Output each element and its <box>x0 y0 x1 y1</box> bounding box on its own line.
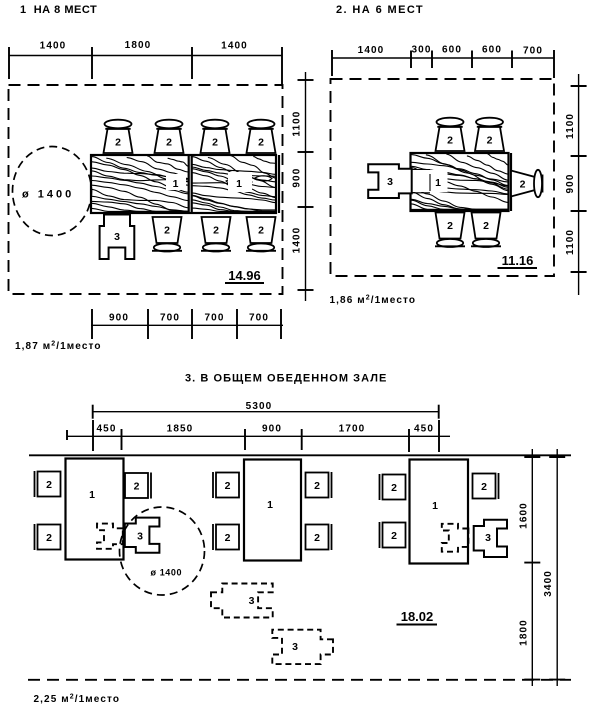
svg-text:450: 450 <box>97 424 117 435</box>
svg-text:2: 2 <box>164 225 170 237</box>
svg-text:1600: 1600 <box>519 502 530 529</box>
svg-text:700: 700 <box>160 313 180 324</box>
svg-text:900: 900 <box>292 168 303 188</box>
svg-text:18.02: 18.02 <box>401 609 434 624</box>
svg-text:300: 300 <box>412 45 432 56</box>
svg-text:1100: 1100 <box>565 113 576 139</box>
svg-text:2: 2 <box>212 137 218 149</box>
svg-text:2: 2 <box>520 178 526 190</box>
svg-text:ø 1400: ø 1400 <box>151 568 183 578</box>
svg-text:1100: 1100 <box>565 229 576 255</box>
svg-text:ø 1400: ø 1400 <box>22 189 74 201</box>
svg-text:2: 2 <box>314 480 320 492</box>
svg-text:900: 900 <box>109 313 129 324</box>
svg-text:700: 700 <box>249 313 269 324</box>
svg-text:2: 2 <box>213 225 219 237</box>
svg-text:2. НА 6 МЕСТ: 2. НА 6 МЕСТ <box>336 4 424 16</box>
svg-text:3. В ОБЩЕМ ОБЕДЕННОМ ЗАЛЕ: 3. В ОБЩЕМ ОБЕДЕННОМ ЗАЛЕ <box>185 373 387 385</box>
svg-text:1800: 1800 <box>519 619 530 646</box>
svg-text:1850: 1850 <box>167 424 194 435</box>
svg-text:2: 2 <box>166 137 172 149</box>
svg-text:1400: 1400 <box>221 41 248 52</box>
svg-text:1: 1 <box>173 178 179 190</box>
svg-text:2: 2 <box>483 220 489 232</box>
svg-text:2: 2 <box>481 481 487 493</box>
svg-text:700: 700 <box>205 313 225 324</box>
svg-text:2: 2 <box>447 220 453 232</box>
svg-text:2: 2 <box>258 225 264 237</box>
svg-text:1: 1 <box>89 489 95 501</box>
svg-text:2: 2 <box>46 532 52 544</box>
svg-text:450: 450 <box>414 424 434 435</box>
svg-text:3: 3 <box>137 531 143 543</box>
svg-text:2: 2 <box>225 480 231 492</box>
svg-text:1400: 1400 <box>358 45 385 56</box>
svg-text:2,25 м2/1место: 2,25 м2/1место <box>34 694 121 706</box>
svg-text:3: 3 <box>114 231 120 243</box>
svg-text:11.16: 11.16 <box>502 253 534 268</box>
svg-text:1700: 1700 <box>339 424 366 435</box>
svg-text:1: 1 <box>435 177 441 189</box>
svg-text:900: 900 <box>565 174 576 194</box>
svg-text:3400: 3400 <box>543 570 554 597</box>
svg-text:2: 2 <box>225 532 231 544</box>
svg-text:900: 900 <box>262 424 282 435</box>
svg-text:1: 1 <box>236 178 242 190</box>
svg-text:600: 600 <box>442 45 462 56</box>
svg-text:3: 3 <box>292 641 298 653</box>
svg-text:14.96: 14.96 <box>228 268 261 283</box>
svg-text:2: 2 <box>487 135 493 147</box>
svg-text:2: 2 <box>134 481 140 493</box>
svg-text:2: 2 <box>391 482 397 494</box>
svg-text:1: 1 <box>267 499 273 511</box>
svg-text:700: 700 <box>523 46 543 57</box>
svg-text:1100: 1100 <box>292 111 303 137</box>
svg-text:2: 2 <box>391 530 397 542</box>
svg-text:5300: 5300 <box>246 401 273 412</box>
svg-text:1800: 1800 <box>125 40 152 51</box>
svg-text:1,86 м2/1место: 1,86 м2/1место <box>330 295 417 307</box>
svg-text:2: 2 <box>46 479 52 491</box>
svg-text:1: 1 <box>432 500 438 512</box>
svg-text:1 НА 8 МЕСТ: 1 НА 8 МЕСТ <box>20 4 97 16</box>
svg-text:3: 3 <box>249 595 255 607</box>
svg-text:3: 3 <box>485 532 491 544</box>
svg-text:2: 2 <box>258 137 264 149</box>
svg-text:1400: 1400 <box>40 41 67 52</box>
svg-text:3: 3 <box>387 176 393 188</box>
svg-text:1,87 м2/1место: 1,87 м2/1место <box>15 341 102 353</box>
svg-text:1400: 1400 <box>292 227 303 254</box>
svg-text:2: 2 <box>314 532 320 544</box>
svg-text:2: 2 <box>115 137 121 149</box>
svg-text:600: 600 <box>482 45 502 56</box>
svg-text:2: 2 <box>447 135 453 147</box>
